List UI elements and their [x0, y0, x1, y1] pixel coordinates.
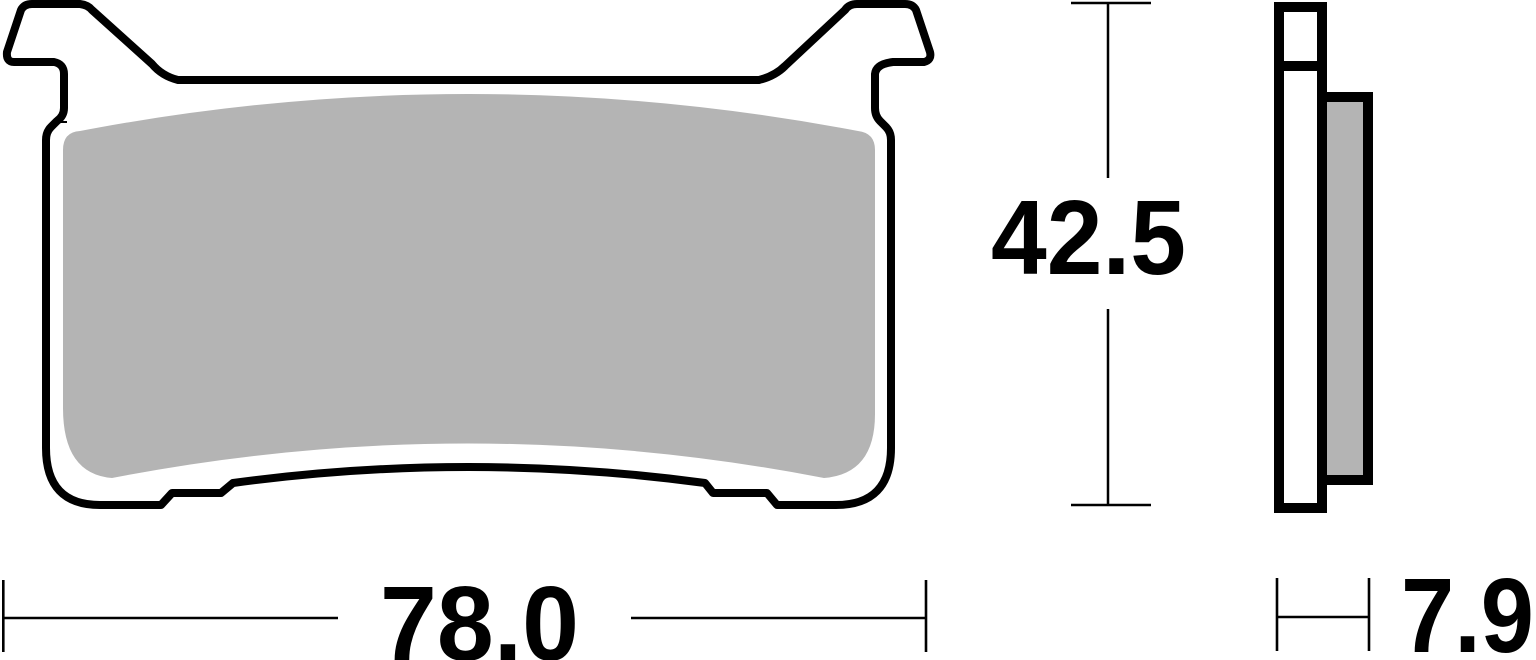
svg-text:78.0: 78.0: [380, 565, 579, 660]
svg-text:42.5: 42.5: [991, 179, 1186, 297]
svg-text:7.9: 7.9: [1401, 557, 1534, 660]
